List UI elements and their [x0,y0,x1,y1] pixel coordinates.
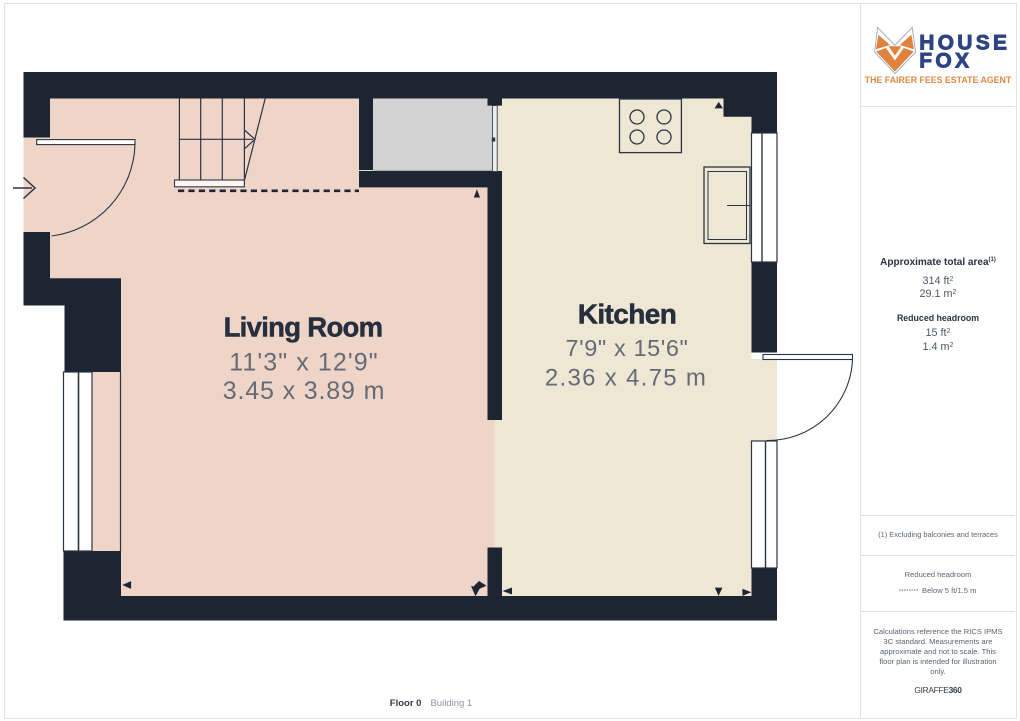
svg-text:3.45 x 3.89 m: 3.45 x 3.89 m [223,377,386,405]
svg-text:FOX: FOX [919,50,972,73]
svg-text:7'9" x 15'6": 7'9" x 15'6" [565,335,688,361]
svg-text:Kitchen: Kitchen [578,299,676,330]
svg-text:11'3" x 12'9": 11'3" x 12'9" [229,349,379,377]
svg-text:2.36 x 4.75 m: 2.36 x 4.75 m [545,364,707,391]
svg-text:Living Room: Living Room [224,311,383,342]
